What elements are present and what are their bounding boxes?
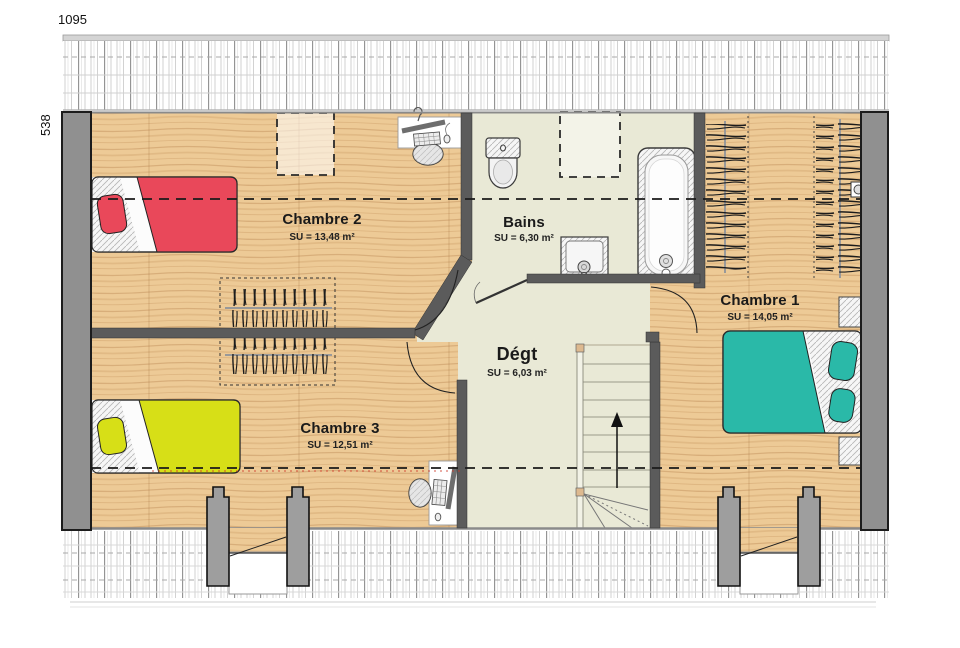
wall-stairwell bbox=[650, 342, 660, 528]
bed-pillow bbox=[96, 416, 127, 456]
newel-post bbox=[576, 488, 584, 496]
room-label-chambre1: Chambre 1 bbox=[720, 292, 799, 309]
bathtub-icon bbox=[638, 148, 695, 282]
wall-chambre2-chambre3 bbox=[91, 328, 415, 338]
wardrobe-hangers-icon bbox=[228, 336, 330, 374]
dormer-post bbox=[207, 487, 229, 586]
stair-stringer bbox=[577, 345, 583, 528]
wall-exterior-right bbox=[861, 112, 888, 530]
washbasin-icon bbox=[561, 237, 608, 280]
nightstand-icon bbox=[839, 437, 862, 465]
roof-ridge-bar bbox=[63, 35, 889, 41]
room-surface-bains: SU = 6,30 m² bbox=[494, 233, 554, 244]
skylight-icon bbox=[560, 112, 620, 177]
room-label-degt: Dégt bbox=[497, 344, 538, 364]
wall-exterior-left bbox=[62, 112, 91, 530]
dormer-post bbox=[287, 487, 309, 586]
bed-single-red bbox=[92, 177, 237, 252]
wall-jamb bbox=[646, 332, 659, 342]
floor-plan-svg: Chambre 2 SU = 13,48 m² Bains SU = 6,30 … bbox=[0, 0, 960, 648]
roof-band-top bbox=[63, 35, 889, 110]
wall-chambre3-degt bbox=[457, 380, 467, 528]
room-label-bains: Bains bbox=[503, 214, 545, 231]
room-label-chambre3: Chambre 3 bbox=[300, 420, 379, 437]
skylight-icon bbox=[277, 113, 334, 175]
mouse-icon bbox=[435, 513, 441, 521]
dormer-post bbox=[718, 487, 740, 586]
room-label-chambre2: Chambre 2 bbox=[282, 211, 361, 228]
wall-chambre2-bains bbox=[461, 113, 472, 260]
floor-plan-page: Chambre 2 SU = 13,48 m² Bains SU = 6,30 … bbox=[0, 0, 960, 648]
room-surface-chambre2: SU = 13,48 m² bbox=[289, 232, 355, 243]
room-surface-chambre3: SU = 12,51 m² bbox=[307, 440, 373, 451]
wardrobe-hangers-icon bbox=[701, 124, 749, 270]
bed-single-yellow bbox=[92, 400, 240, 473]
keyboard-icon bbox=[414, 132, 441, 146]
dormer-post bbox=[798, 487, 820, 586]
dimension-height: 538 bbox=[38, 114, 53, 136]
dimension-width: 1095 bbox=[58, 12, 87, 27]
newel-post bbox=[576, 344, 584, 352]
wardrobe-hangers-icon bbox=[816, 121, 864, 275]
mouse-icon bbox=[444, 135, 450, 143]
wardrobe-hangers-icon bbox=[228, 289, 330, 327]
room-surface-chambre1: SU = 14,05 m² bbox=[727, 312, 793, 323]
toilet-icon bbox=[486, 138, 520, 188]
nightstand-icon bbox=[839, 297, 862, 327]
keyboard-icon bbox=[432, 479, 447, 505]
wall-bains-chambre1 bbox=[694, 113, 705, 288]
wall-bains-bottom bbox=[527, 274, 700, 283]
room-surface-degt: SU = 6,03 m² bbox=[487, 368, 547, 379]
